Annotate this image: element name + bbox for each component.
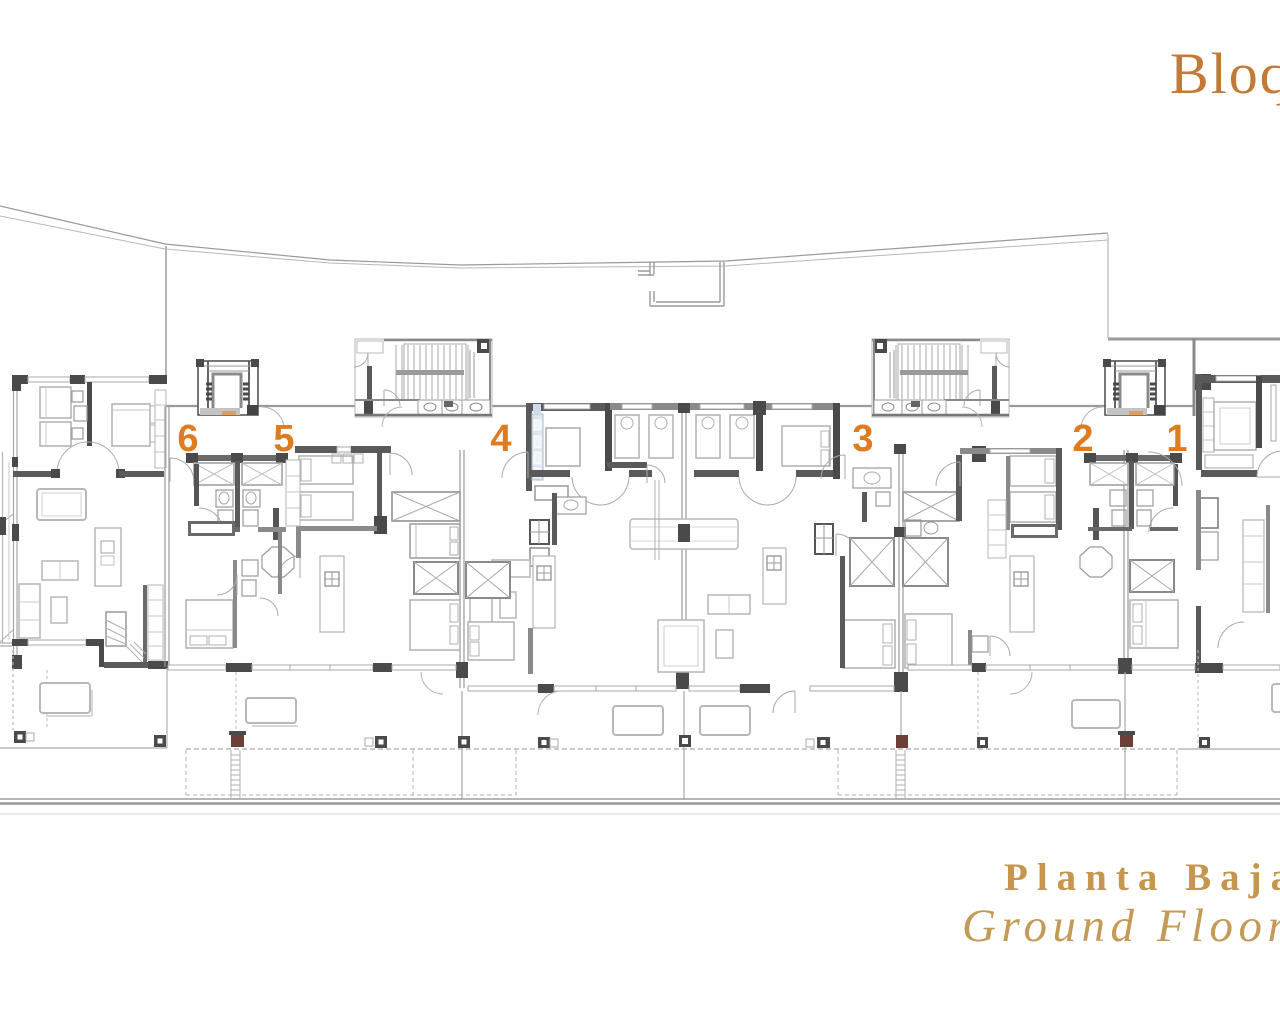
svg-text:4: 4 — [490, 418, 511, 460]
svg-text:5: 5 — [273, 418, 294, 460]
svg-text:3: 3 — [852, 418, 873, 460]
svg-text:6: 6 — [177, 418, 198, 460]
svg-text:1: 1 — [1166, 418, 1187, 460]
svg-text:2: 2 — [1072, 418, 1093, 460]
svg-text:Bloque 1: Bloque 1 — [1170, 41, 1280, 106]
svg-text:Ground Floor Bl: Ground Floor Bl — [962, 900, 1280, 952]
svg-text:Planta Baja Blo: Planta Baja Blo — [1004, 856, 1280, 899]
